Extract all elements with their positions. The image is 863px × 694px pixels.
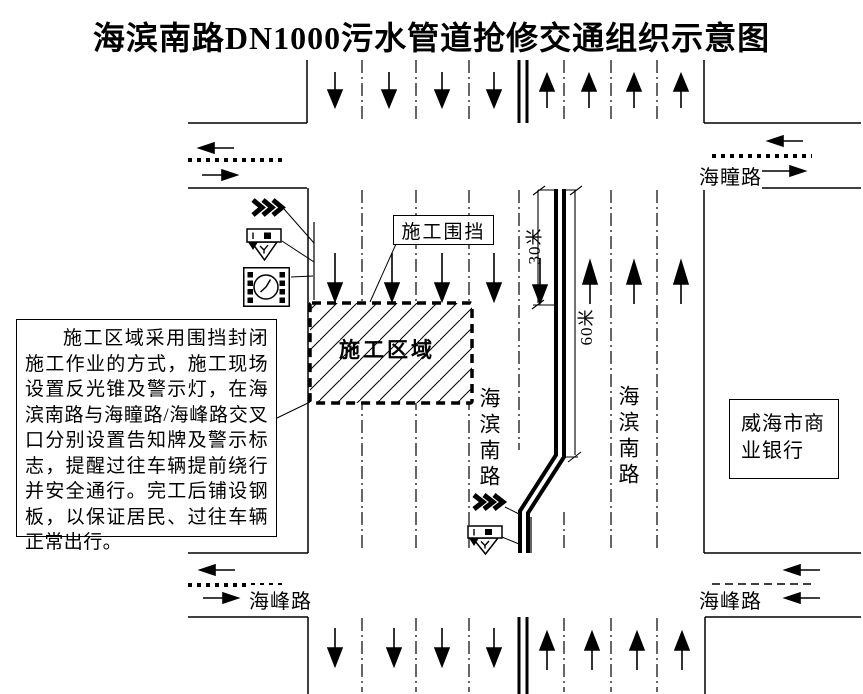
south-cross-road-label-right: 海峰路 (699, 585, 762, 614)
cross-street-dotted-centerlines (188, 156, 812, 585)
west-arrow (768, 136, 803, 146)
southbound-lane-arrows-top (328, 72, 501, 107)
west-arrow (785, 565, 820, 575)
lane-dividers-bottom (362, 618, 657, 692)
northbound-lane-arrows-workzone (583, 261, 688, 304)
dimension-60m-label: 60米 (572, 304, 590, 350)
southbound-lane-arrows-workzone (328, 253, 547, 303)
construction-fence-label: 施工围挡 (393, 215, 494, 245)
northbound-lane-arrows-top (540, 74, 688, 108)
east-arrow (203, 593, 238, 603)
dimension-30m-label: 30米 (520, 223, 538, 269)
southbound-lane-arrows-bottom (328, 628, 501, 666)
west-arrow (200, 565, 235, 575)
construction-note-box: 施工区域采用围挡封闭施工作业的方式，施工现场设置反光锥及警示灯，在海滨南路与海瞳… (16, 319, 277, 537)
notice-board-icon (244, 268, 290, 307)
construction-zone-label: 施工区域 (339, 334, 435, 364)
west-arrow (199, 143, 234, 153)
south-cross-road-label-left: 海峰路 (249, 585, 312, 614)
median-double-line (519, 60, 527, 694)
west-arrow (785, 593, 820, 603)
diagram-title: 海滨南路DN1000污水管道抢修交通组织示意图 (0, 13, 863, 59)
main-road-label-left: 海滨南路 (477, 387, 501, 491)
traffic-diagram-canvas: 海滨南路DN1000污水管道抢修交通组织示意图 施工围挡 施工区域 海滨南路 海… (0, 0, 863, 694)
main-road-label-right: 海滨南路 (616, 385, 640, 489)
east-arrow (762, 166, 805, 176)
construction-warning-sign-icon (468, 526, 502, 554)
construction-warning-sign-icon (247, 229, 281, 260)
northbound-lane-arrows-bottom (540, 632, 689, 670)
north-cross-road-label: 海瞳路 (699, 161, 762, 190)
lane-dividers-top (362, 60, 657, 122)
cross-street-direction-arrows (199, 136, 820, 603)
bank-building-label: 威海市商业银行 (729, 399, 839, 479)
detour-chevrons-icon (474, 495, 503, 509)
detour-chevrons-icon (253, 200, 282, 215)
east-arrow (202, 170, 237, 180)
